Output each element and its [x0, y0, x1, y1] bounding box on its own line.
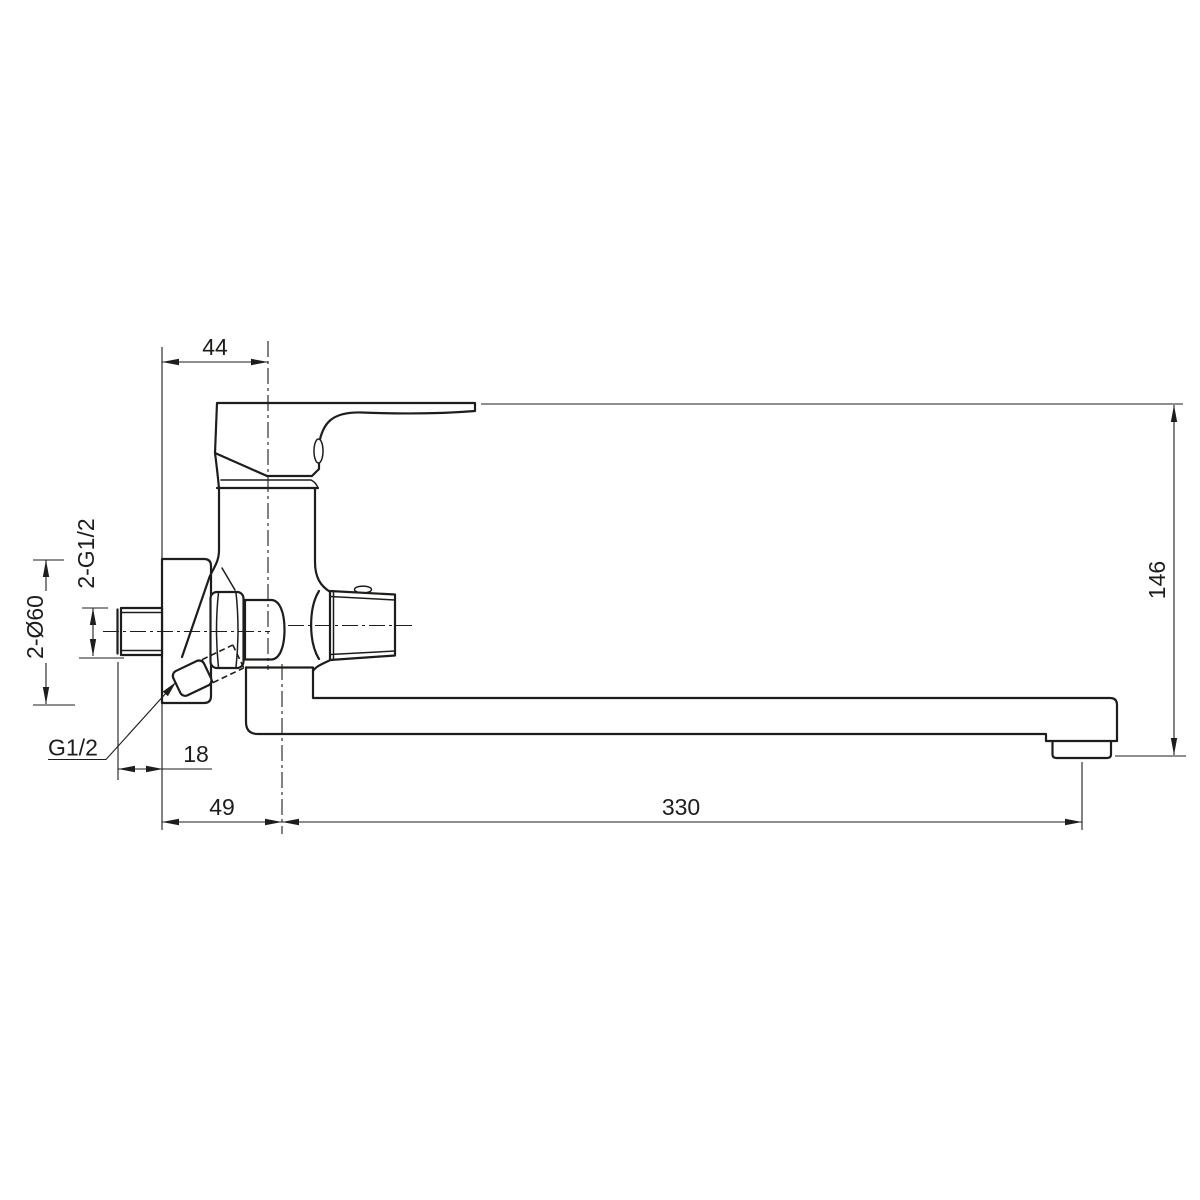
cap-left-edge — [215, 453, 219, 488]
foot-inner-edge — [222, 568, 235, 590]
arrowhead-left — [118, 766, 135, 772]
dim-44: 44 — [162, 334, 268, 365]
arrowhead-right — [146, 766, 163, 772]
cartridge-housing — [245, 600, 285, 660]
arrowhead-bottom — [1171, 738, 1177, 755]
cap-ring-line — [221, 480, 318, 488]
handle-side-detail — [314, 439, 323, 463]
dim-18-label: 18 — [183, 741, 209, 767]
arrowhead-left — [162, 819, 179, 825]
faucet-dimension-drawing: 44 146 330 49 — [0, 0, 1200, 1200]
spout-top-edge — [246, 668, 1117, 742]
arrowhead-left — [282, 819, 299, 825]
outlet-foot-curve — [313, 660, 331, 671]
dim-escutcheon-label: 2-Ø60 — [22, 595, 48, 659]
body-right-edge — [315, 488, 330, 592]
leader-outlet-thread: G1/2 — [48, 682, 176, 761]
dim-44-label: 44 — [202, 334, 228, 360]
dim-inlet-thread-label: 2-G1/2 — [73, 518, 99, 588]
leader-outlet-thread-label: G1/2 — [48, 735, 98, 761]
dim-330-label: 330 — [662, 794, 700, 820]
dim-escutcheon: 2-Ø60 — [22, 560, 75, 705]
arrowhead-top — [90, 608, 96, 625]
faucet-handle — [215, 403, 475, 476]
dim-330: 330 — [282, 762, 1082, 830]
faucet-outline — [118, 347, 1118, 830]
arrowhead-bottom — [43, 687, 49, 704]
dim-49: 49 — [162, 794, 282, 825]
dim-146: 146 — [481, 404, 1186, 756]
arrowhead-top — [1171, 405, 1177, 422]
arrowhead-top — [43, 560, 49, 577]
dim-49-label: 49 — [209, 794, 235, 820]
arrowhead-left — [162, 359, 179, 365]
technical-drawing-page: 44 146 330 49 — [0, 0, 1200, 1200]
arrowhead-right — [251, 359, 268, 365]
arrowhead-right — [1065, 819, 1082, 825]
arrowhead-bottom — [90, 639, 96, 656]
spout-bottom-edge — [246, 668, 1117, 742]
aerator — [1053, 741, 1112, 758]
dim-146-label: 146 — [1144, 561, 1170, 599]
dim-inlet-thread: 2-G1/2 — [73, 518, 124, 658]
arrowhead-right — [265, 819, 282, 825]
